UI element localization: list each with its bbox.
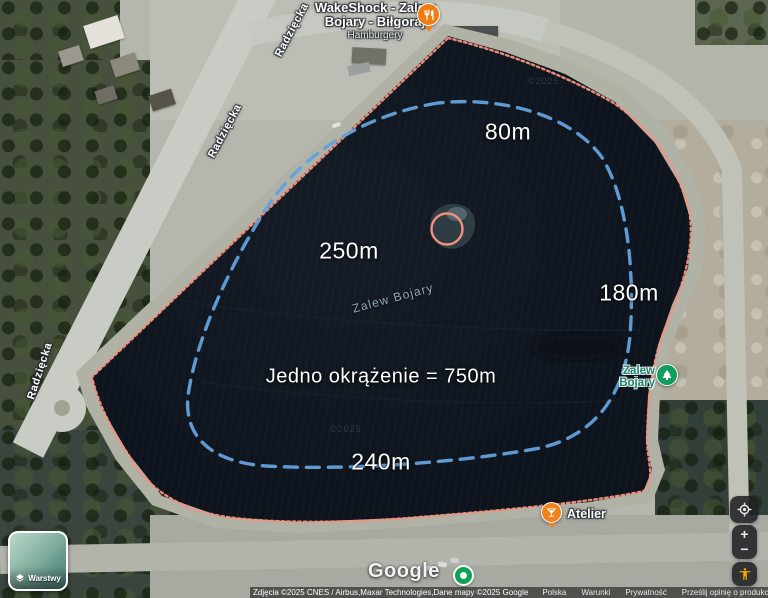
imagery-attribution: Zdjęcia ©2025 CNES / Airbus,Maxar Techno… <box>253 588 528 597</box>
poi-wakeshock-pin[interactable] <box>417 3 440 32</box>
distance-label-top: 80m <box>485 119 531 146</box>
pegman-button[interactable] <box>732 562 757 586</box>
footer-link-privacy[interactable]: Prywatność <box>625 588 666 597</box>
imagery-watermark: ©2025 <box>528 76 560 86</box>
restaurant-icon <box>423 9 435 21</box>
distance-label-bottom: 240m <box>351 449 411 476</box>
bar-icon <box>546 507 557 518</box>
footer-link-terms[interactable]: Warunki <box>581 588 610 597</box>
pegman-icon <box>738 567 752 581</box>
attribution-bar: Zdjęcia ©2025 CNES / Airbus,Maxar Techno… <box>250 587 768 598</box>
poi-green-dot[interactable] <box>453 565 474 586</box>
footer-link-feedback[interactable]: Prześlij opinię o produkcie <box>682 588 768 597</box>
poi-beach-line2: Bojary <box>619 377 655 389</box>
footer-link-region[interactable]: Polska <box>542 588 566 597</box>
zoom-control[interactable]: + − <box>732 525 757 559</box>
my-location-button[interactable] <box>730 496 758 523</box>
poi-atelier-pin[interactable] <box>541 502 562 528</box>
google-logo[interactable]: Google <box>368 560 440 583</box>
poi-atelier-label[interactable]: Atelier <box>567 507 606 521</box>
zoom-out-button[interactable]: − <box>732 542 757 557</box>
terrain-forest-topright <box>695 0 768 45</box>
lap-distance-label: Jedno okrążenie = 750m <box>266 366 497 389</box>
map-canvas[interactable]: 80m 250m 180m 240m Jedno okrążenie = 750… <box>0 0 768 598</box>
imagery-watermark: ©2025 <box>330 424 362 434</box>
distance-label-right: 180m <box>599 280 659 307</box>
poi-beach-line1: Zalew <box>619 365 655 377</box>
poi-beach-label[interactable]: Zalew Bojary <box>619 365 655 389</box>
car <box>450 557 460 563</box>
compass-icon <box>737 502 752 517</box>
zoom-in-button[interactable]: + <box>732 527 757 542</box>
layers-icon <box>15 573 25 583</box>
distance-label-left: 250m <box>319 238 379 265</box>
layers-button[interactable]: Warstwy <box>8 531 68 591</box>
layers-label: Warstwy <box>28 574 61 583</box>
poi-beach-pin[interactable] <box>656 364 678 386</box>
tree-icon <box>661 369 673 381</box>
